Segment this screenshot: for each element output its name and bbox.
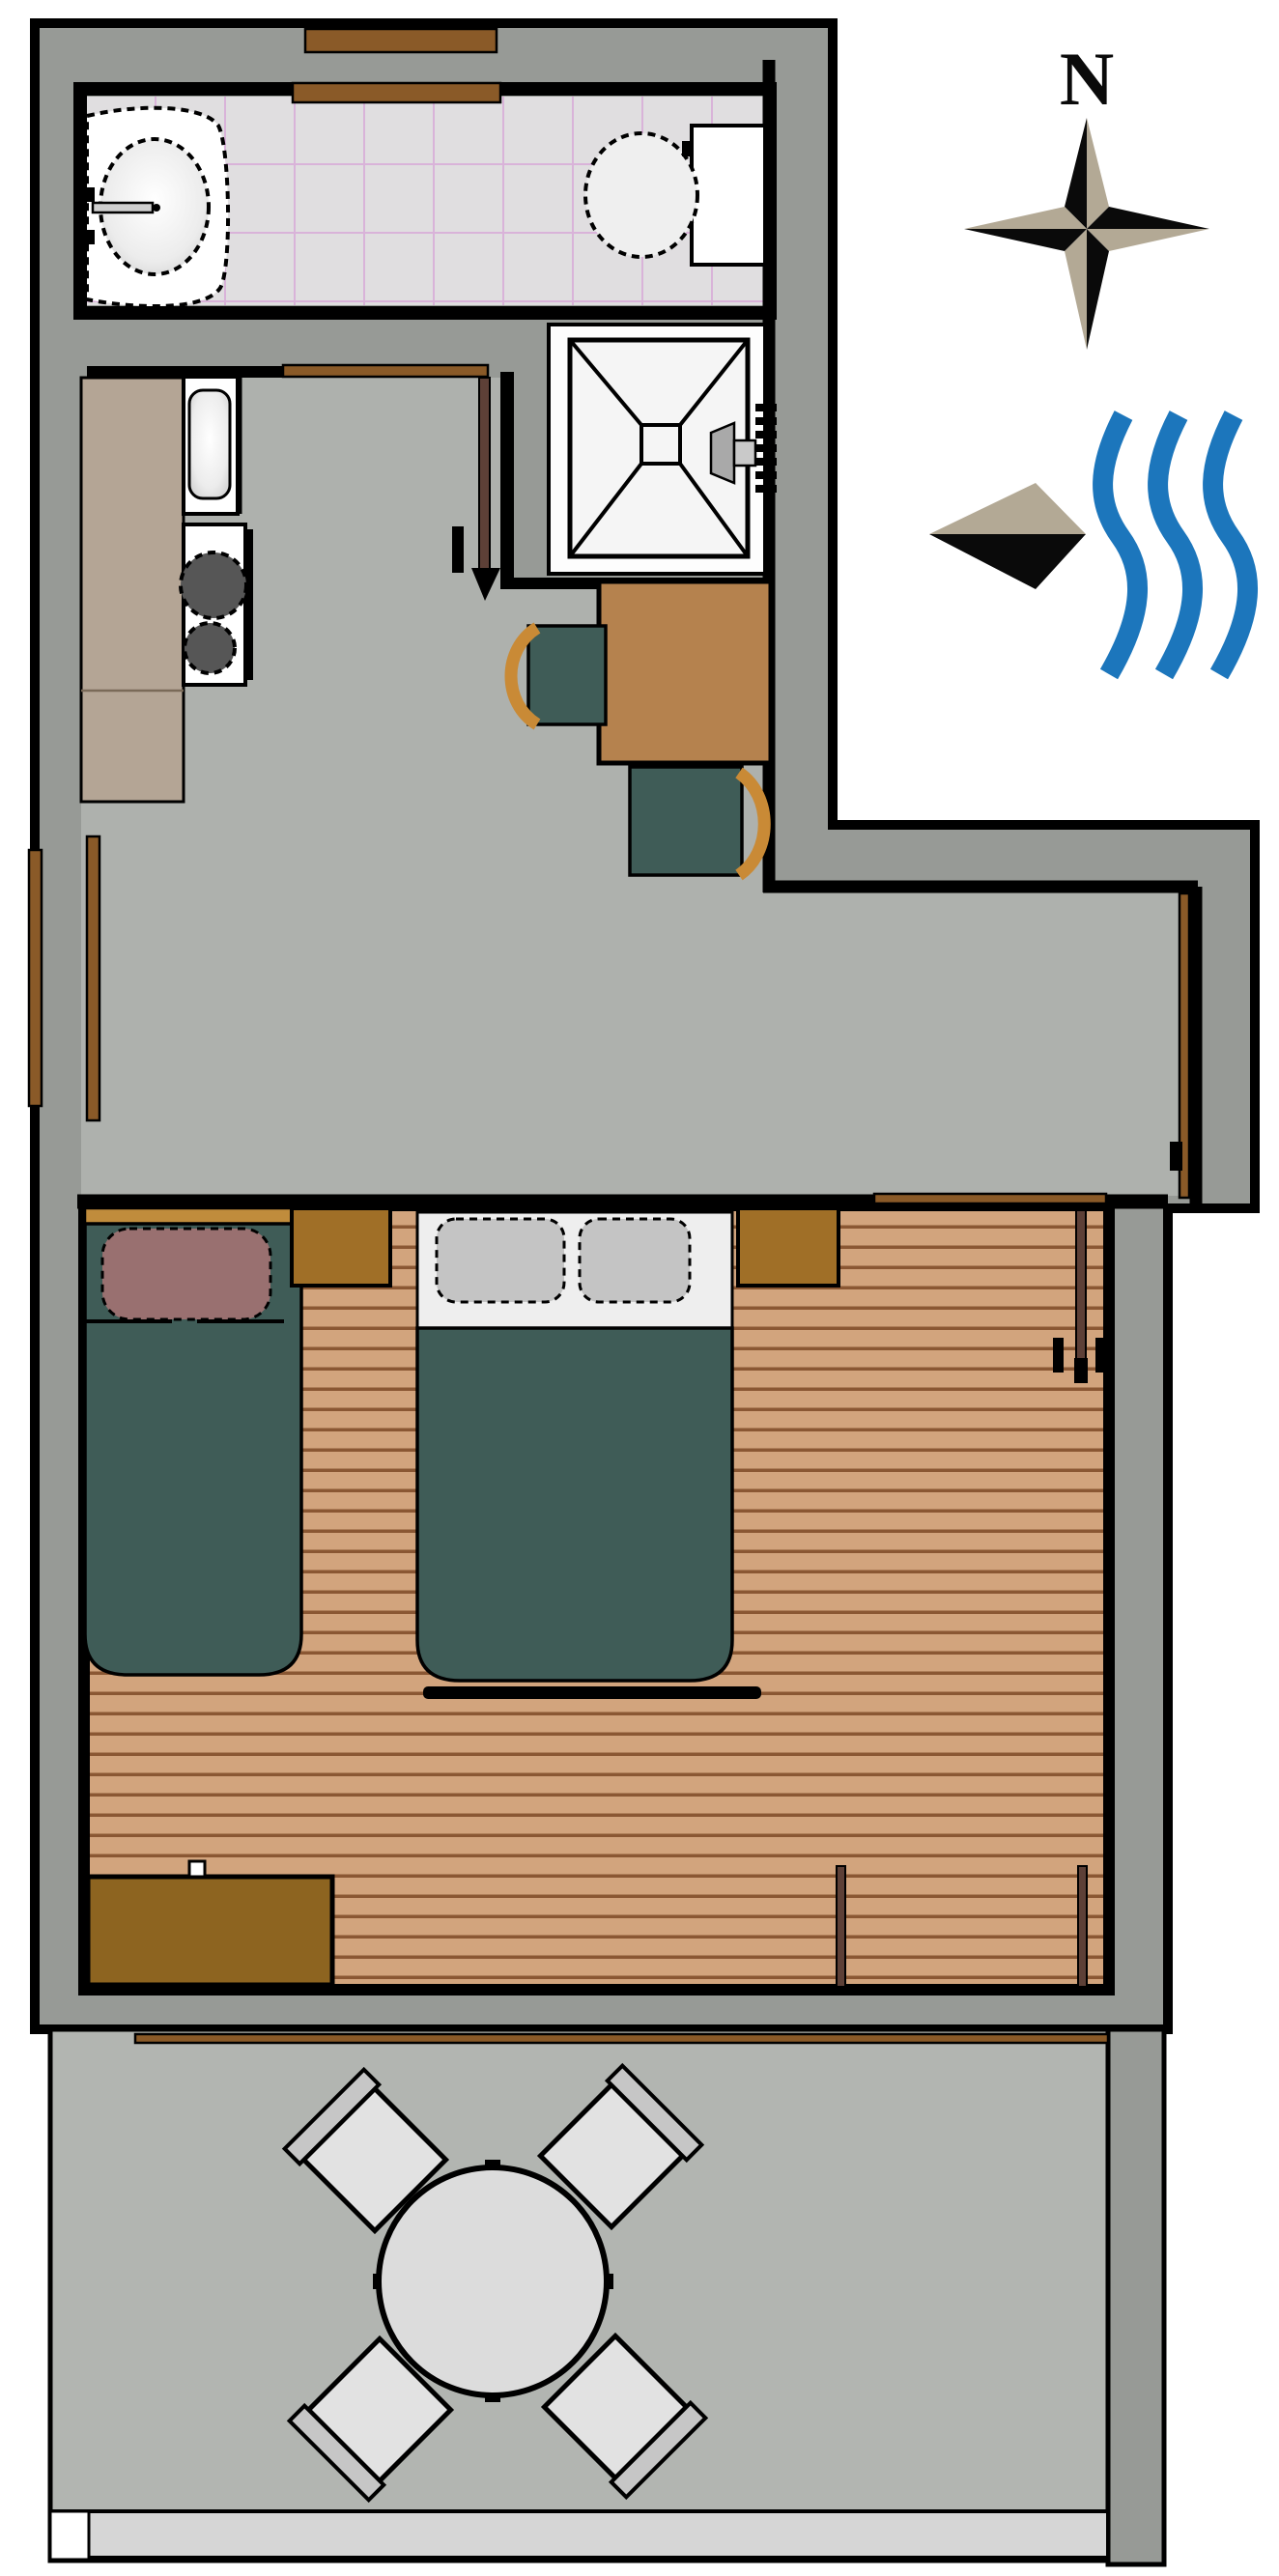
bedroom-wall-window [874, 1194, 1106, 1203]
dining-table [599, 581, 771, 763]
compass-north-label: N [1060, 37, 1114, 121]
stove-control-band [245, 529, 253, 680]
bedroom-door-leaf [1076, 1210, 1086, 1382]
water-direction-marker [929, 415, 1248, 674]
kitchen-door-leaf [479, 378, 490, 582]
toilet-hinge [682, 141, 694, 156]
nightstand-right [738, 1208, 838, 1286]
patio-bottom-step [50, 2511, 1108, 2558]
kitchen-sink-bowl [189, 390, 230, 498]
double-bed-foot-bench [423, 1686, 761, 1699]
patio-table [379, 2167, 607, 2395]
shower [549, 325, 777, 574]
floor-plan-drawing: N [0, 0, 1279, 2576]
compass-star [964, 118, 1209, 350]
single-bed-headboard [85, 1208, 301, 1224]
compass-rose-icon: N [964, 37, 1209, 350]
double-bed-pillow-right [580, 1219, 690, 1302]
kitchen-counter [81, 378, 184, 802]
top-window-outer [305, 29, 497, 52]
stove-burner-large [181, 552, 246, 618]
double-bed [417, 1328, 732, 1681]
patio-right-wall [1108, 2029, 1164, 2564]
toilet-bowl [585, 133, 697, 257]
sliding-door-post-right [1078, 1866, 1087, 1987]
top-window-inner [293, 83, 500, 102]
sliding-door-post-left [837, 1866, 845, 1987]
shower-drain [641, 425, 680, 464]
living-right-door-handle [1170, 1142, 1182, 1171]
water-waves-icon [1103, 415, 1248, 674]
single-bed-pillow [102, 1229, 270, 1319]
left-window-inner [87, 836, 99, 1120]
patio-door-threshold [135, 2034, 1108, 2043]
stove-burner-small [185, 623, 235, 673]
floor-plan-canvas: N [0, 0, 1279, 2576]
dresser [88, 1877, 332, 1985]
flow-direction-arrow-icon [929, 483, 1086, 589]
double-bed-pillow-left [437, 1219, 564, 1302]
left-window-outer [29, 850, 42, 1106]
dresser-knob [189, 1861, 205, 1877]
toilet-tank [692, 126, 765, 265]
patio-corner-cap [50, 2511, 89, 2560]
kitchen-door-threshold [283, 365, 488, 377]
nightstand-left [292, 1208, 390, 1286]
